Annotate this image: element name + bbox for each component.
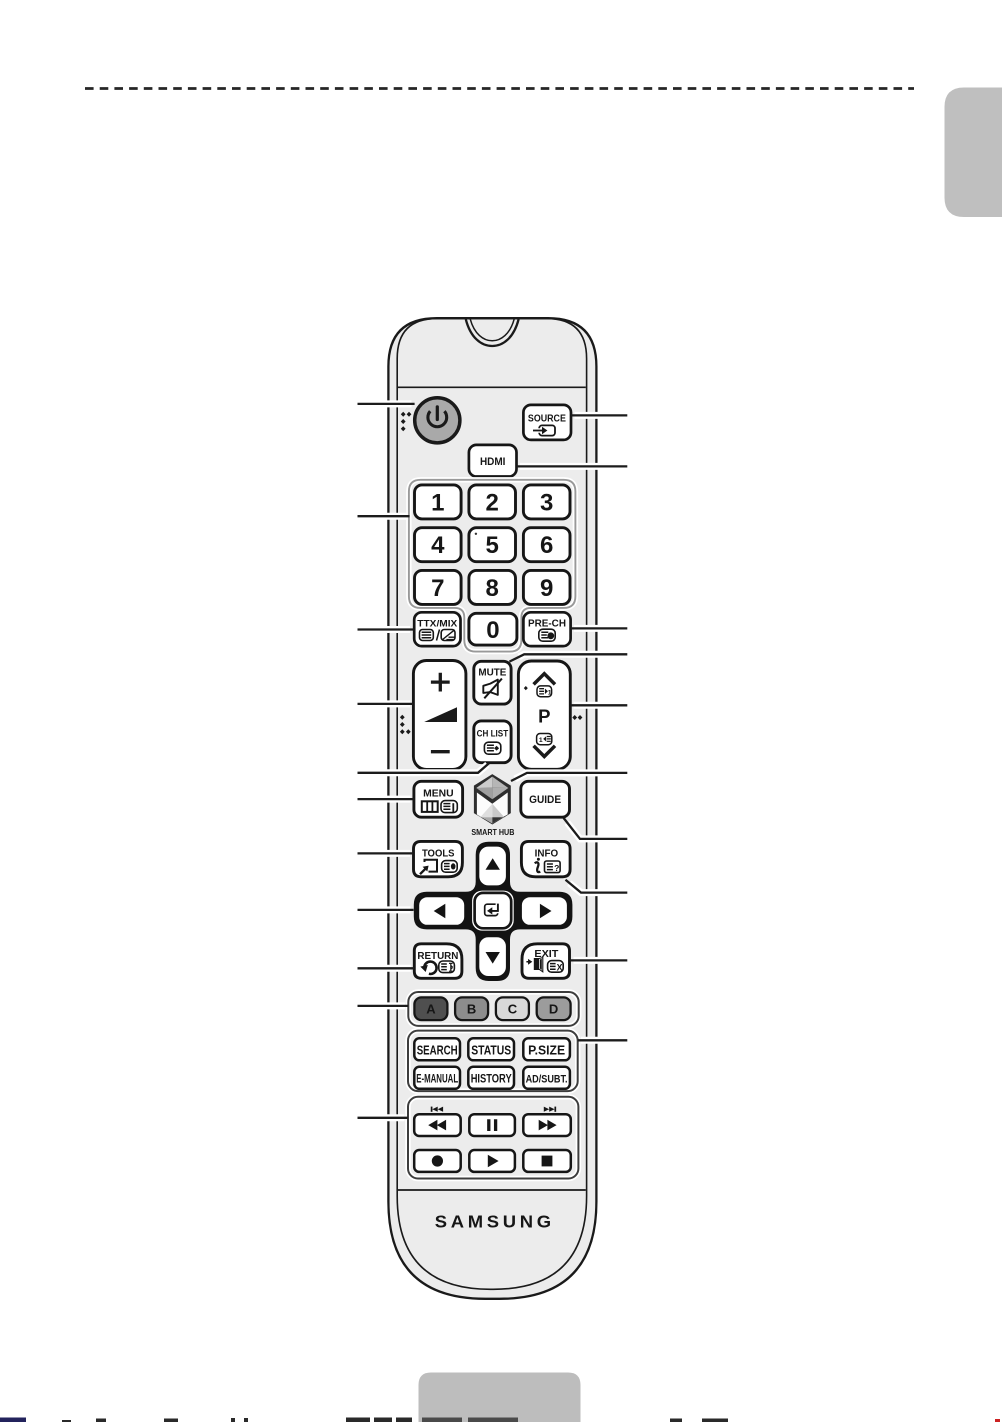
- svg-text:CH LIST: CH LIST: [477, 729, 509, 739]
- svg-text:GUIDE: GUIDE: [529, 794, 561, 806]
- svg-text:E-MANUAL: E-MANUAL: [416, 1071, 458, 1085]
- svg-text:5: 5: [486, 532, 499, 559]
- svg-text:D: D: [549, 1001, 558, 1016]
- svg-text:X: X: [557, 962, 563, 972]
- svg-text:MUTE: MUTE: [478, 667, 506, 678]
- svg-text:9: 9: [540, 575, 553, 602]
- svg-text:STATUS: STATUS: [471, 1042, 511, 1057]
- svg-text:HISTORY: HISTORY: [471, 1071, 513, 1085]
- svg-text:3: 3: [540, 489, 553, 516]
- svg-text:1: 1: [431, 489, 444, 516]
- svg-text:AD/SUBT.: AD/SUBT.: [526, 1073, 568, 1085]
- svg-text:A: A: [426, 1001, 436, 1016]
- svg-text:B: B: [467, 1001, 476, 1016]
- svg-text:4: 4: [431, 532, 445, 559]
- svg-text:?: ?: [554, 863, 559, 873]
- svg-text:P.SIZE: P.SIZE: [528, 1042, 565, 1057]
- svg-text:SEARCH: SEARCH: [417, 1042, 458, 1057]
- svg-text:MENU: MENU: [423, 789, 454, 800]
- svg-text:SAMSUNG: SAMSUNG: [435, 1212, 555, 1232]
- svg-text:6: 6: [540, 532, 553, 559]
- svg-text:HDMI: HDMI: [480, 456, 506, 468]
- svg-text:PRE-CH: PRE-CH: [528, 618, 566, 629]
- svg-text:0: 0: [486, 617, 499, 644]
- svg-text:TOOLS: TOOLS: [422, 849, 455, 860]
- svg-text:7: 7: [431, 575, 444, 602]
- svg-text:C: C: [508, 1001, 518, 1016]
- svg-text:P: P: [538, 706, 550, 727]
- svg-text:8: 8: [486, 575, 499, 602]
- svg-text:2: 2: [486, 489, 499, 516]
- svg-text:TTX/MIX: TTX/MIX: [417, 618, 458, 629]
- svg-text:RETURN: RETURN: [417, 951, 458, 962]
- svg-text:SMART HUB: SMART HUB: [471, 828, 514, 837]
- svg-text:1: 1: [539, 737, 543, 744]
- svg-text:1: 1: [548, 690, 552, 697]
- svg-text:SOURCE: SOURCE: [528, 413, 566, 424]
